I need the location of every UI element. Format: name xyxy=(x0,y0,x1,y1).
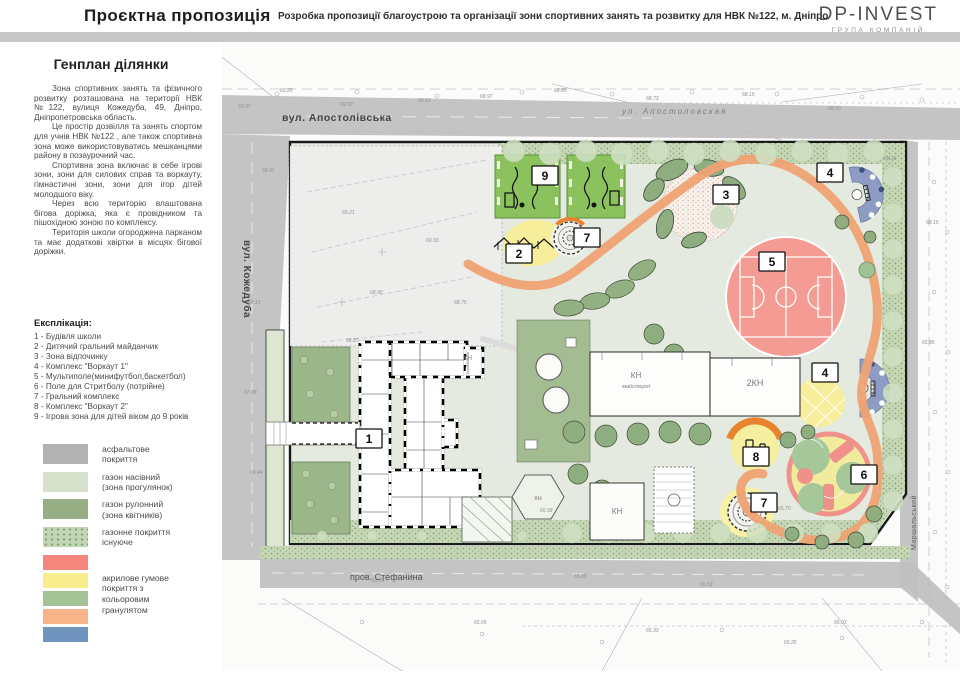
legend-label: газон насівний (зона прогулянок) xyxy=(102,472,173,493)
sidebar: Генплан ділянки Зона спортивних занять т… xyxy=(0,42,222,671)
legend-swatch xyxy=(43,527,88,547)
tree-icon xyxy=(575,140,597,162)
zone-marker-number: 3 xyxy=(723,188,730,202)
legend-row: газонне покриття існуюче xyxy=(43,527,219,548)
tree-icon xyxy=(883,491,903,511)
track-green-island xyxy=(859,262,875,278)
sidebar-paragraph: Територія школи огороджена парканом та м… xyxy=(34,228,202,257)
explication-item: 8 - Комплекс "Воркаут 2" xyxy=(34,402,214,412)
tree-icon xyxy=(815,535,829,549)
granulate-swatch xyxy=(43,627,88,642)
tree-icon xyxy=(595,425,617,447)
header-divider-strip xyxy=(0,32,960,42)
zone-9-kids-playground xyxy=(495,155,625,218)
tree-icon xyxy=(827,143,849,165)
survey-elevation: 67.88 xyxy=(244,390,257,396)
tree-icon xyxy=(683,143,705,165)
explication-list: 1 - Будівля школи2 - Дитячий гральний ма… xyxy=(34,332,214,422)
zone-marker-number: 9 xyxy=(542,169,549,183)
survey-elevation: 69.53 xyxy=(418,98,431,104)
explication-item: 9 - Ігрова зона для дітей віком до 9 рок… xyxy=(34,412,214,422)
sidebar-paragraph: Спортивна зона включає в себе ігрові зон… xyxy=(34,161,202,199)
company-logo: DP-INVEST ГРУПА КОМПАНІЙ xyxy=(819,4,938,34)
school-wing xyxy=(443,420,457,447)
zone-marker-number: 4 xyxy=(822,366,829,380)
zone-marker-number: 7 xyxy=(761,496,768,510)
zone-marker-number: 2 xyxy=(516,247,523,261)
survey-elevation: 69.21 xyxy=(342,210,355,216)
street-label-apostolovskaya-survey: ул. Апостоловская xyxy=(621,107,727,116)
tree-icon xyxy=(864,231,876,243)
tree-icon xyxy=(562,523,582,543)
tree-icon xyxy=(563,421,585,443)
tree-icon xyxy=(835,215,849,229)
building-label: КН xyxy=(534,496,541,502)
granulate-swatch xyxy=(43,591,88,606)
tree-icon xyxy=(710,523,730,543)
explication-item: 1 - Будівля школи xyxy=(34,332,214,342)
surface-legend-granulate: акрилове гумове покриття з кольоровим гр… xyxy=(43,555,219,642)
tree-icon xyxy=(780,432,796,448)
tree-icon xyxy=(627,423,649,445)
zone-marker-number: 7 xyxy=(584,231,591,245)
survey-elevation: 68.15 xyxy=(742,92,755,98)
header: Проєктна пропозиція Розробка пропозиції … xyxy=(0,0,960,32)
tree-icon xyxy=(883,311,903,331)
tree-icon xyxy=(883,347,903,367)
genplan-heading: Генплан ділянки xyxy=(0,56,222,72)
survey-elevation: 69.07 xyxy=(238,104,251,110)
building-label: КН xyxy=(631,371,642,380)
page-title: Проєктна пропозиція xyxy=(84,6,271,26)
survey-elevation: 69.50 xyxy=(340,102,353,108)
legend-row: газон насівний (зона прогулянок) xyxy=(43,472,219,493)
survey-elevation: 68.15 xyxy=(926,220,939,226)
tree-icon xyxy=(863,140,885,162)
building-label: 2КН xyxy=(747,378,764,388)
tree-icon xyxy=(883,419,903,439)
zone-marker-number: 1 xyxy=(366,432,373,446)
surface-legend-simple: асфальтове покриттягазон насівний (зона … xyxy=(43,444,219,548)
survey-elevation: 68.73 xyxy=(646,96,659,102)
zone-5-multifield xyxy=(726,237,846,357)
sidebar-paragraph: Через всю територію влаштована бігова до… xyxy=(34,199,202,228)
tree-icon xyxy=(611,143,633,165)
tree-icon xyxy=(568,464,588,484)
bush-icon xyxy=(367,531,377,541)
sidebar-paragraphs: Зона спортивних занять та фізичного розв… xyxy=(34,84,202,257)
lawn-strip-bottom-outside xyxy=(260,546,910,559)
survey-elevation: 65.33 xyxy=(646,628,659,634)
legend-swatch xyxy=(43,444,88,464)
survey-elevation: 65.65 xyxy=(474,620,487,626)
explication-item: 5 - Мультиполе(минифутбол,баскетбол) xyxy=(34,372,214,382)
building-label: майстерні xyxy=(622,383,650,390)
legend-label: газон рулонний (зона квітників) xyxy=(102,499,163,520)
survey-elevation: 65.25 xyxy=(784,640,797,646)
tree-icon xyxy=(503,140,525,162)
tree-icon xyxy=(848,532,864,548)
tree-icon xyxy=(883,383,903,403)
zone-marker-number: 8 xyxy=(753,450,760,464)
tree-icon xyxy=(755,143,777,165)
granulate-swatch xyxy=(43,609,88,624)
legend-swatch xyxy=(43,472,88,492)
legend-label: газонне покриття існуюче xyxy=(102,527,170,548)
tree-icon xyxy=(785,527,799,541)
survey-elevation: 66.44 xyxy=(250,470,263,476)
surface-legend: асфальтове покриттягазон насівний (зона … xyxy=(43,444,219,645)
street-label-kozheduba: вул. Кожедуба xyxy=(241,240,253,318)
tree-icon xyxy=(659,421,681,443)
tree-icon xyxy=(866,506,882,522)
granulate-label: акрилове гумове покриття з кольоровим гр… xyxy=(102,573,169,616)
tree-icon xyxy=(801,425,815,439)
survey-elevation: 68.91 xyxy=(262,168,275,174)
legend-swatch xyxy=(43,499,88,519)
survey-elevation: 65.85 xyxy=(574,574,587,580)
granulate-swatch xyxy=(43,573,88,588)
survey-elevation: 68.90 xyxy=(370,290,383,296)
project-poster: { "header": { "title": "Проєктна пропози… xyxy=(0,0,960,671)
tree-icon xyxy=(689,423,711,445)
survey-elevation: 65.64 xyxy=(372,578,385,584)
survey-elevation: 68.87 xyxy=(346,338,359,344)
tree-icon xyxy=(883,239,903,259)
explication-item: 3 - Зона відпочинку xyxy=(34,352,214,362)
explication-item: 7 - Гральний комплекс xyxy=(34,392,214,402)
sidebar-paragraph: Зона спортивних занять та фізичного розв… xyxy=(34,84,202,122)
zone-marker-number: 6 xyxy=(861,468,868,482)
zone-marker-number: 5 xyxy=(769,255,776,269)
explication-item: 6 - Поле для Стритболу (потрійне) xyxy=(34,382,214,392)
building-label: КН xyxy=(464,356,472,362)
tree-icon xyxy=(747,523,767,543)
bush-icon xyxy=(417,531,427,541)
street-label-stefanyna: пров. Стефанина xyxy=(350,572,423,582)
tree-icon xyxy=(883,167,903,187)
tree-icon xyxy=(644,324,664,344)
legend-label: асфальтове покриття xyxy=(102,444,150,465)
granulate-swatch xyxy=(43,555,88,570)
survey-elevation: 68.75 xyxy=(454,300,467,306)
survey-elevation: 65.53 xyxy=(700,582,713,588)
sidebar-paragraph: Це простір дозвілля та занять спортом дл… xyxy=(34,122,202,160)
survey-elevation: 65.70 xyxy=(778,506,791,512)
legend-row: асфальтове покриття xyxy=(43,444,219,465)
survey-elevation: 68.97 xyxy=(480,94,493,100)
site-plan-map: вул. Апостолівська ул. Апостоловская вул… xyxy=(222,42,960,671)
bush-icon xyxy=(317,531,327,541)
survey-elevation: 69.25 xyxy=(280,88,293,94)
street-label-marshalskyi: Маршальський xyxy=(910,495,918,550)
street-label-apostolivska: вул. Апостолівська xyxy=(282,112,392,124)
survey-elevation: 68.85 xyxy=(554,88,567,94)
survey-elevation: 65.85 xyxy=(922,340,935,346)
school-entrance xyxy=(266,422,360,445)
survey-elevation: 68.26 xyxy=(884,156,897,162)
tree-icon xyxy=(883,275,903,295)
tree-icon xyxy=(719,140,741,162)
legend-row: газон рулонний (зона квітників) xyxy=(43,499,219,520)
survey-elevation: 66.58 xyxy=(540,508,553,514)
explication-item: 4 - Комплекс "Воркаут 1" xyxy=(34,362,214,372)
bush-icon xyxy=(517,531,527,541)
tree-icon xyxy=(883,455,903,475)
survey-elevation: 69.33 xyxy=(426,238,439,244)
survey-elevation: 68.20 xyxy=(828,106,841,112)
survey-elevation: 65.03 xyxy=(834,620,847,626)
explication-item: 2 - Дитячий гральний майданчик xyxy=(34,342,214,352)
page-subtitle: Розробка пропозиції благоустрою та орган… xyxy=(278,11,828,22)
tree-icon xyxy=(883,203,903,223)
logo-name: DP-INVEST xyxy=(819,4,938,26)
building-label: КН xyxy=(612,507,623,516)
survey-elevation: 68.15 xyxy=(248,300,261,306)
tree-icon xyxy=(539,143,561,165)
tree-icon xyxy=(647,140,669,162)
tree-icon xyxy=(791,140,813,162)
zone-marker-number: 4 xyxy=(827,166,834,180)
explication-heading: Експлікація: xyxy=(34,318,92,329)
